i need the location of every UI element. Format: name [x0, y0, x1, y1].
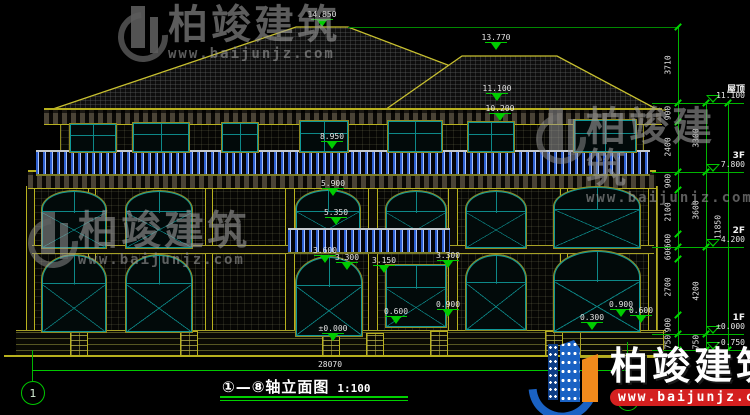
watermark-text: 柏竣建筑 [586, 104, 715, 192]
elevation-marker-icon [491, 43, 501, 50]
elevation-marker-value: 10.200 [486, 104, 515, 113]
logo-building-bar [560, 340, 580, 402]
elevation-marker-line [630, 315, 652, 316]
elevation-marker-line [437, 260, 459, 261]
elevation-marker-value: 13.770 [482, 33, 511, 42]
elevation-marker-value: 5.350 [324, 208, 348, 217]
elevation-marker-icon [443, 261, 453, 268]
dim-value: 3710 [664, 55, 673, 74]
elevation-marker-value: 11.100 [483, 84, 512, 93]
dim-value: 2700 [664, 277, 673, 296]
elevation-marker-line [325, 217, 347, 218]
level-elevation: 11.100 [716, 91, 745, 100]
watermark-gray: 柏竣建筑 www.baijunjz.com [118, 4, 340, 62]
watermark-body: 柏竣建筑 www.baijunjz.com [78, 210, 250, 268]
dim-value: 900 [664, 317, 673, 331]
elevation-marker-icon [331, 218, 341, 225]
elevation-marker-value: 0.600 [629, 306, 653, 315]
elevation-marker-line [373, 265, 395, 266]
elevation-marker-value: ±0.000 [319, 324, 348, 333]
watermark-gray: 柏竣建筑 www.baijunjz.com [536, 106, 750, 206]
brand-text: 柏竣建筑 [610, 344, 750, 388]
brand-logo-icon [526, 340, 610, 412]
logo-building-bar [548, 344, 558, 400]
elevation-marker-icon [587, 323, 597, 330]
elevation-marker-line [581, 322, 603, 323]
elevation-marker-line [489, 113, 511, 114]
watermark-body: 柏竣建筑 www.baijunjz.com [586, 106, 750, 206]
watermark-gray: 柏竣建筑 www.baijunjz.com [28, 210, 250, 268]
level-line [652, 247, 744, 248]
cad-elevation-drawing: 28070 1 8 ①—⑧轴立面图1:100 14.85013.77011.10… [0, 0, 750, 415]
watermark-logo-icon [536, 106, 580, 158]
elevation-marker-value: 8.950 [320, 132, 344, 141]
elevation-marker-icon [443, 310, 453, 317]
elevation-marker-icon [328, 189, 338, 196]
level-elevation: 4.200 [721, 235, 745, 244]
watermark-text: 柏竣建筑 [78, 208, 250, 254]
brand-url: www.baijunjz.com [610, 389, 750, 406]
watermark-url: www.baijunjz.com [168, 46, 340, 62]
watermark-logo-icon [118, 4, 162, 56]
elevation-marker-icon [328, 334, 338, 341]
level-line [652, 334, 744, 335]
watermark-logo-icon [28, 210, 72, 262]
elevation-marker-icon [495, 114, 505, 121]
elevation-marker-line [336, 262, 358, 263]
elevation-marker-icon [391, 317, 401, 324]
elevation-marker-value: 3.600 [313, 246, 337, 255]
elevation-marker-value: 3.300 [335, 253, 359, 262]
elevation-marker-icon [379, 266, 389, 273]
elevation-marker-icon [327, 142, 337, 149]
elevation-marker-icon [320, 256, 330, 263]
elevation-marker-value: 0.300 [580, 313, 604, 322]
elevation-marker-line [322, 333, 344, 334]
logo-building-bar [582, 354, 598, 402]
elevation-marker-line [322, 188, 344, 189]
watermark-body: 柏竣建筑 www.baijunjz.com [168, 4, 340, 62]
elevation-marker-icon [342, 263, 352, 270]
elevation-marker-line [485, 42, 507, 43]
elevation-marker-line [385, 316, 407, 317]
watermark-url: www.baijunjz.com [586, 190, 750, 206]
elevation-marker-value: 3.150 [372, 256, 396, 265]
level-elevation: ±0.000 [716, 322, 745, 331]
watermark-text: 柏竣建筑 [168, 2, 340, 48]
elevation-marker-value: 5.900 [321, 179, 345, 188]
elevation-marker-line [314, 255, 336, 256]
elevation-marker-value: 3.300 [436, 251, 460, 260]
elevation-marker-icon [636, 316, 646, 323]
dim-value: 4200 [692, 281, 701, 300]
watermark-brand: 柏竣建筑 www.baijunjz.com [526, 340, 750, 412]
elevation-marker-line [486, 93, 508, 94]
brand-body: 柏竣建筑 www.baijunjz.com [610, 346, 750, 406]
elevation-marker-value: 0.900 [436, 300, 460, 309]
elevation-marker-icon [492, 94, 502, 101]
elevation-marker-line [437, 309, 459, 310]
watermark-url: www.baijunjz.com [78, 252, 250, 268]
elevation-marker-line [321, 141, 343, 142]
elevation-marker-value: 0.600 [384, 307, 408, 316]
elevation-marker-icon [616, 310, 626, 317]
